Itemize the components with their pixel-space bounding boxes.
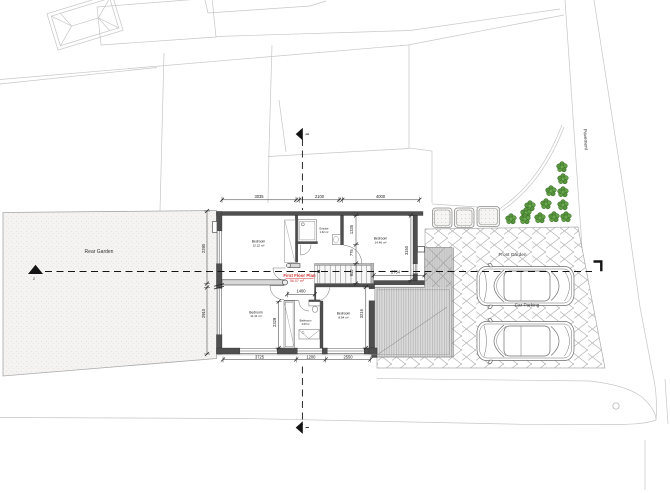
svg-text:2290: 2290 (201, 243, 206, 253)
svg-text:12.22 m²: 12.22 m² (253, 243, 265, 247)
svg-text:Rear Garden: Rear Garden (85, 249, 114, 255)
svg-text:910: 910 (349, 269, 354, 277)
svg-text:2550: 2550 (343, 354, 353, 359)
svg-text:3.67m²: 3.67m² (301, 322, 309, 326)
svg-text:3216: 3216 (359, 308, 364, 318)
svg-text:1200: 1200 (306, 354, 316, 359)
svg-text:Car Parking: Car Parking (515, 303, 540, 308)
svg-text:2100: 2100 (315, 194, 325, 199)
svg-text:Ensuite: Ensuite (320, 227, 329, 231)
svg-text:11.41 m²: 11.41 m² (250, 314, 262, 318)
svg-text:4000: 4000 (376, 194, 386, 199)
svg-text:775: 775 (349, 249, 354, 257)
svg-text:First Floor Plan: First Floor Plan (283, 273, 316, 278)
svg-text:14.46 m²: 14.46 m² (375, 241, 387, 245)
svg-text:3150: 3150 (404, 245, 409, 255)
svg-text:3035: 3035 (254, 194, 264, 199)
svg-text:2734: 2734 (391, 270, 401, 275)
svg-text:Bathroom: Bathroom (300, 319, 312, 323)
svg-text:2329: 2329 (272, 317, 277, 327)
svg-text:1400: 1400 (296, 289, 306, 294)
svg-text:8.94 m²: 8.94 m² (338, 315, 348, 319)
svg-text:2: 2 (33, 277, 35, 281)
svg-text:1.62 m²: 1.62 m² (320, 230, 329, 234)
svg-text:2910: 2910 (201, 308, 206, 318)
svg-text:1335: 1335 (349, 224, 354, 234)
svg-text:3725: 3725 (255, 354, 265, 359)
svg-text:56.07 m²: 56.07 m² (290, 279, 305, 283)
svg-text:Front Garden: Front Garden (499, 252, 527, 257)
